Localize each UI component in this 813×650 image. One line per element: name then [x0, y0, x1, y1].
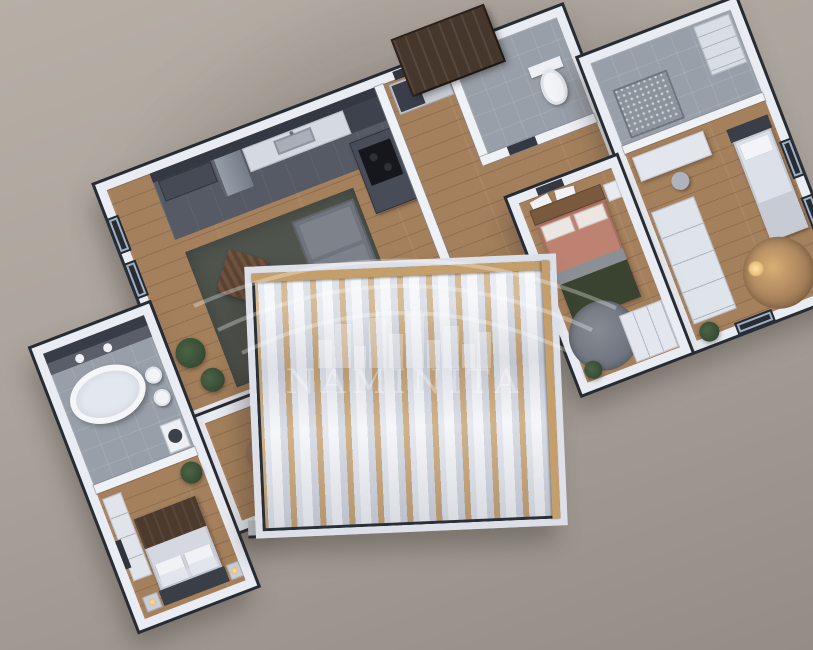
burner: [368, 152, 378, 162]
washer-door: [166, 427, 184, 445]
pergola-wood-beam: [541, 261, 560, 519]
burner: [383, 162, 393, 172]
floor-plan-render: NAMINITA: [0, 0, 813, 650]
sink: [74, 353, 86, 365]
terrace-pergola: [244, 253, 568, 538]
sink: [102, 342, 114, 354]
pergola-wood-beam: [252, 261, 550, 283]
pillow: [738, 133, 774, 161]
